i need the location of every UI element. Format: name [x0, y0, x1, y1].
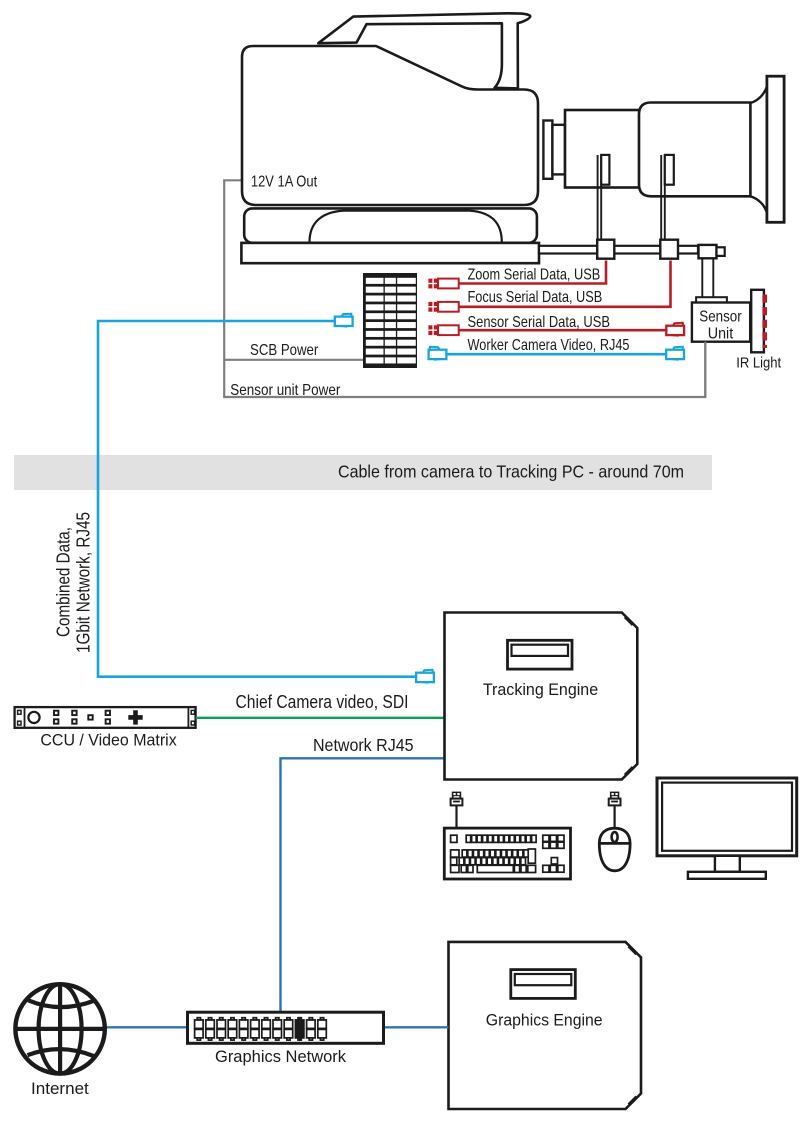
svg-text:Chief Camera video, SDI: Chief Camera video, SDI	[236, 692, 409, 712]
svg-text:CCU / Video Matrix: CCU / Video Matrix	[40, 731, 177, 750]
svg-text:Internet: Internet	[31, 1079, 89, 1098]
svg-text:Cable from camera to Tracking: Cable from camera to Tracking PC - aroun…	[338, 462, 684, 482]
svg-text:Network RJ45: Network RJ45	[313, 735, 414, 755]
svg-text:Sensor Serial Data, USB: Sensor Serial Data, USB	[468, 314, 611, 331]
svg-text:Sensor: Sensor	[699, 309, 742, 326]
svg-text:SCB Power: SCB Power	[250, 342, 319, 359]
svg-text:Zoom Serial Data, USB: Zoom Serial Data, USB	[468, 266, 601, 283]
svg-text:Unit: Unit	[708, 326, 734, 343]
svg-text:Worker Camera Video, RJ45: Worker Camera Video, RJ45	[468, 337, 630, 354]
svg-text:Combined Data,: Combined Data,	[54, 527, 74, 637]
svg-text:12V 1A Out: 12V 1A Out	[251, 174, 318, 191]
svg-text:Focus Serial Data, USB: Focus Serial Data, USB	[468, 289, 603, 306]
svg-text:Sensor unit Power: Sensor unit Power	[230, 382, 341, 399]
svg-text:Tracking Engine: Tracking Engine	[483, 681, 598, 699]
svg-text:Graphics Network: Graphics Network	[215, 1048, 347, 1066]
svg-text:IR Light: IR Light	[736, 356, 781, 372]
svg-text:1Gbit Network, RJ45: 1Gbit Network, RJ45	[73, 512, 93, 653]
svg-text:Graphics Engine: Graphics Engine	[486, 1011, 603, 1029]
